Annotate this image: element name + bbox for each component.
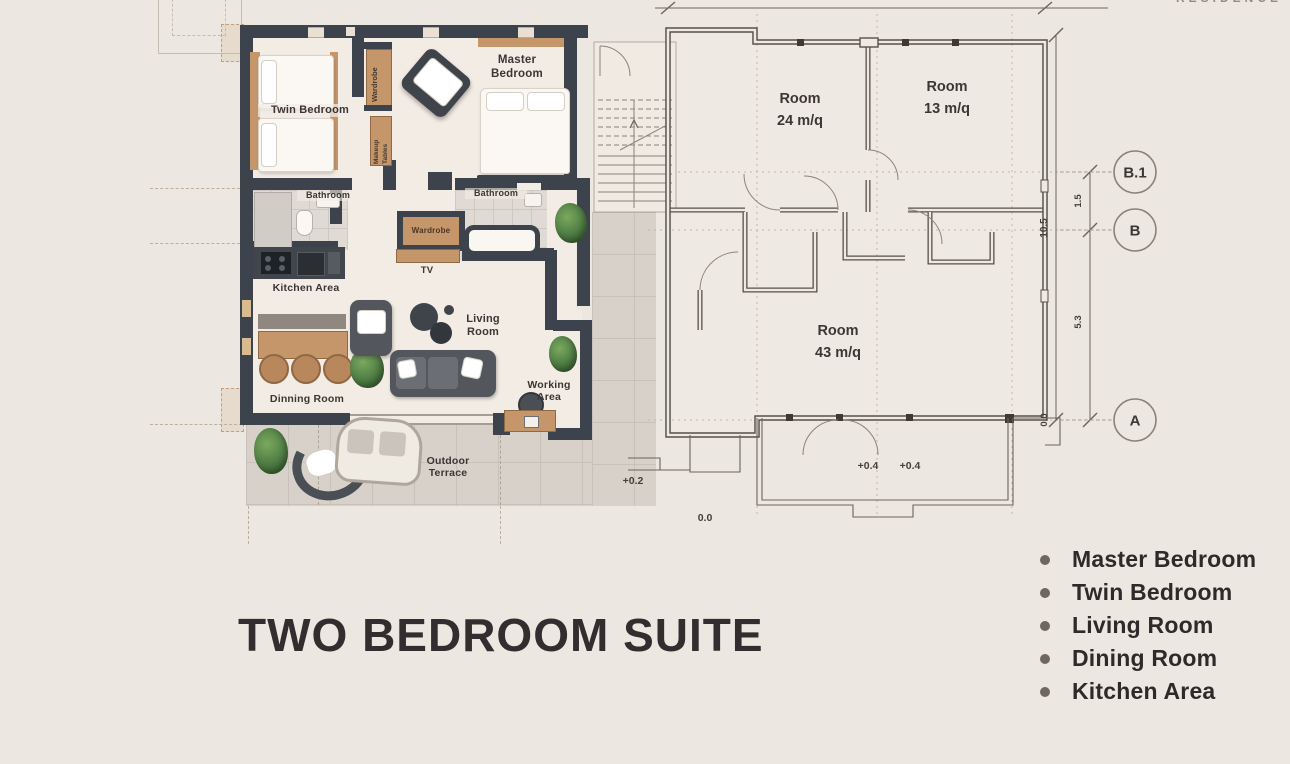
kitchen-sink xyxy=(328,252,340,274)
wall-top xyxy=(240,25,588,38)
bathtub xyxy=(464,225,540,256)
legend: Master Bedroom Twin Bedroom Living Room … xyxy=(1040,543,1280,708)
cushion xyxy=(347,429,375,455)
wall-right-bath xyxy=(577,178,590,306)
page-title: TWO BEDROOM SUITE xyxy=(238,608,764,662)
cooktop xyxy=(261,252,291,274)
legend-item: Master Bedroom xyxy=(1040,543,1280,576)
outdoor-terrace-label: Outdoor Terrace xyxy=(413,455,483,480)
dimension-line-top xyxy=(655,2,1108,14)
legend-item: Living Room xyxy=(1040,609,1280,642)
window xyxy=(346,27,355,36)
cushion xyxy=(428,357,458,389)
neighbor-outline xyxy=(172,0,226,36)
stool xyxy=(259,354,289,384)
stool xyxy=(323,354,353,384)
level-entry: +0.2 xyxy=(623,475,644,487)
burner xyxy=(279,256,285,262)
pillow xyxy=(261,123,277,167)
grid-marker-b: B xyxy=(1130,223,1141,240)
grid-dash xyxy=(500,506,501,544)
room3-area: 43 m/q xyxy=(815,345,861,361)
room2-area: 13 m/q xyxy=(924,101,970,117)
wardrobe-cap xyxy=(364,42,392,49)
legend-item: Twin Bedroom xyxy=(1040,576,1280,609)
legend-bullet xyxy=(1040,588,1050,598)
tv-label: TV xyxy=(415,265,439,276)
legend-item: Dining Room xyxy=(1040,642,1280,675)
dim-datum: 0.0 xyxy=(1039,413,1050,426)
toilet xyxy=(296,210,313,236)
plant xyxy=(555,203,587,243)
cushion xyxy=(357,310,386,334)
dim-b-a: 5.3 xyxy=(1073,315,1084,328)
legend-label: Kitchen Area xyxy=(1072,678,1215,705)
kitchen-counter xyxy=(253,247,345,279)
pillow xyxy=(486,92,524,111)
kitchen-area-label: Kitchen Area xyxy=(258,282,354,294)
legend-label: Master Bedroom xyxy=(1072,546,1256,573)
outdoor-sofa xyxy=(334,415,424,487)
dining-bench xyxy=(258,314,346,329)
dinning-room-label: Dinning Room xyxy=(258,393,356,405)
level-ground: 0.0 xyxy=(698,512,713,524)
grid-dash xyxy=(150,424,242,425)
grid-marker-a: A xyxy=(1130,413,1141,430)
laptop xyxy=(524,416,539,428)
window xyxy=(308,27,324,38)
legend-bullet xyxy=(1040,687,1050,697)
burner xyxy=(265,265,271,271)
bathroom-right-label: Bathroom xyxy=(465,188,527,199)
grid-markers: B.1 B A xyxy=(1114,151,1156,441)
technical-floor-plan: 10.5 0.0 1.5 5.3 B.1 B A Room 24 m/q Roo… xyxy=(590,0,1290,535)
wardrobe-cap xyxy=(364,105,392,111)
sofa xyxy=(390,350,496,397)
tv-unit xyxy=(396,249,460,263)
pillow xyxy=(397,359,418,380)
grid-dash xyxy=(150,243,240,244)
level-terrace-a: +0.4 xyxy=(858,460,879,472)
living-room-label: Living Room xyxy=(456,313,510,339)
dim-b1-b: 1.5 xyxy=(1073,194,1084,208)
nook-wall-stub xyxy=(545,250,557,330)
legend-label: Living Room xyxy=(1072,612,1213,639)
wall-corridor-stub xyxy=(428,172,452,190)
wardrobe-top-label: Wardrobe xyxy=(370,52,379,102)
burner xyxy=(265,256,271,262)
pillow xyxy=(261,60,277,104)
makeup-tables-label: Makeup Tables xyxy=(372,118,390,164)
grid-marker-b1: B.1 xyxy=(1123,165,1146,182)
coffee-table xyxy=(430,322,452,344)
legend-label: Twin Bedroom xyxy=(1072,579,1232,606)
floor-plan-poster: RESIDENCE xyxy=(0,0,1290,764)
dimension-lines-right xyxy=(1049,28,1097,427)
plant xyxy=(254,428,288,474)
burner xyxy=(279,265,285,271)
window xyxy=(242,300,251,317)
master-bedroom-label: Master Bedroom xyxy=(477,54,557,81)
room2-name: Room xyxy=(926,79,967,95)
cushion xyxy=(379,431,407,457)
window xyxy=(518,27,534,38)
pillow xyxy=(527,92,565,111)
legend-label: Dining Room xyxy=(1072,645,1217,672)
bathroom-left-label: Bathroom xyxy=(297,190,359,201)
shower xyxy=(254,192,292,248)
grid-dash xyxy=(248,506,249,544)
twin-bedroom-label: Twin Bedroom xyxy=(258,104,362,117)
room1-name: Room xyxy=(779,91,820,107)
window xyxy=(423,27,439,38)
legend-bullet xyxy=(1040,621,1050,631)
coffee-table xyxy=(444,305,454,315)
oven xyxy=(297,252,325,276)
window xyxy=(242,338,251,355)
master-shelf xyxy=(478,38,564,47)
grid-dash xyxy=(500,425,501,505)
dim-overall: 10.5 xyxy=(1039,218,1050,238)
room3-name: Room xyxy=(817,323,858,339)
armchair xyxy=(350,300,392,356)
master-bench xyxy=(477,175,571,183)
grid-leaders xyxy=(1060,172,1113,420)
pillow xyxy=(460,356,484,380)
desk xyxy=(504,410,556,432)
grid-dash xyxy=(150,188,240,189)
level-terrace-b: +0.4 xyxy=(900,460,921,472)
legend-item: Kitchen Area xyxy=(1040,675,1280,708)
legend-bullet xyxy=(1040,555,1050,565)
wall-twin-bath xyxy=(240,178,352,190)
staircase xyxy=(594,42,676,212)
plant xyxy=(549,336,577,372)
stool xyxy=(291,354,321,384)
legend-bullet xyxy=(1040,654,1050,664)
wardrobe-mid-label: Wardrobe xyxy=(403,226,459,235)
plan-fill xyxy=(668,30,1045,435)
wall-bottom-left xyxy=(240,413,350,425)
room1-area: 24 m/q xyxy=(777,113,823,129)
working-area-label: Working Area xyxy=(520,379,578,404)
